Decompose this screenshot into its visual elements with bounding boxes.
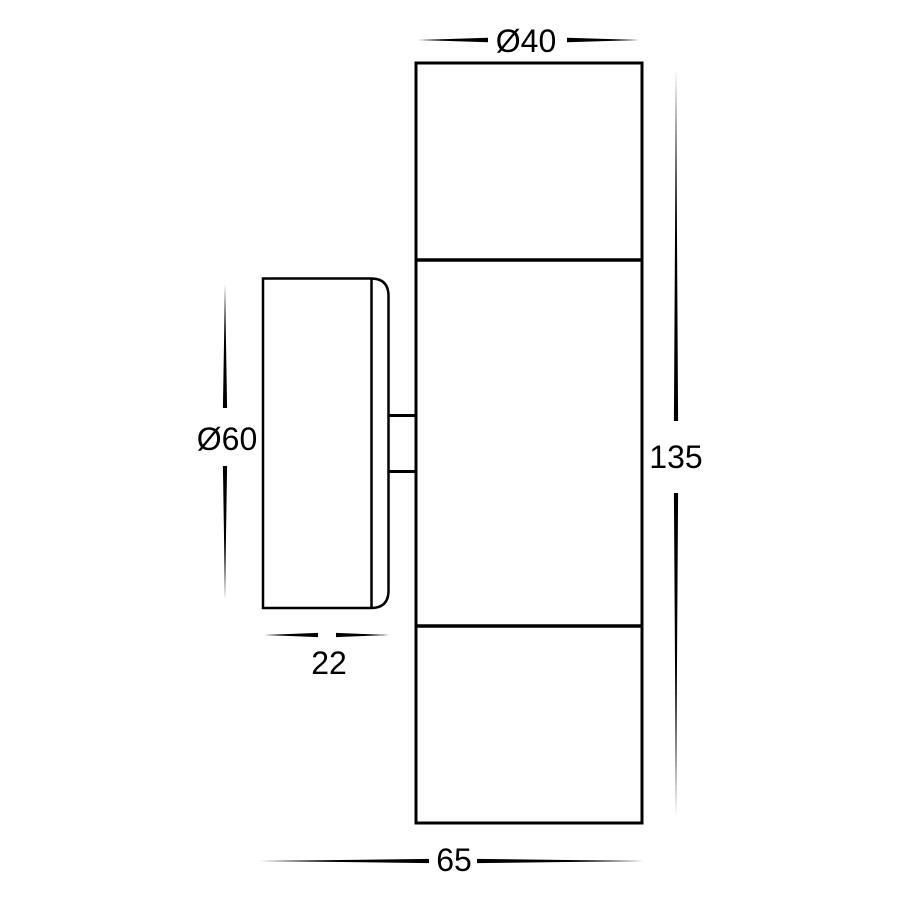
- dimension-body-height: 135: [649, 69, 702, 817]
- dimension-label-plate-diameter: Ø60: [197, 421, 257, 457]
- dimension-plate-diameter: Ø60: [197, 284, 257, 600]
- dimension-arrow-left-icon: [259, 859, 429, 863]
- dimension-label-body-height: 135: [649, 439, 702, 475]
- dimension-label-body-diameter: Ø40: [496, 23, 556, 59]
- dimension-arrow-right-icon: [336, 633, 389, 637]
- dimension-label-overall-depth: 65: [436, 842, 472, 878]
- dimension-arrow-down-icon: [223, 466, 227, 600]
- dimension-body-diameter: Ø40: [418, 23, 640, 59]
- dimension-arrow-up-icon: [223, 284, 227, 408]
- dimension-overall-depth: 65: [259, 842, 644, 878]
- dimension-arrow-right-icon: [477, 859, 644, 863]
- mount-plate: [263, 279, 416, 609]
- body-outline: [416, 63, 642, 823]
- dimension-arrow-left-icon: [264, 633, 318, 637]
- dimension-arrow-down-icon: [674, 493, 678, 817]
- dimension-drawing: Ø40 Ø60 135 22 65: [0, 0, 900, 900]
- drawing-svg: Ø40 Ø60 135 22 65: [0, 0, 900, 900]
- dimension-arrow-right-icon: [567, 38, 640, 42]
- mount-plate-outline: [263, 279, 389, 609]
- dimension-plate-depth: 22: [264, 633, 389, 681]
- dimension-label-plate-depth: 22: [311, 645, 347, 681]
- dimension-arrow-up-icon: [674, 69, 678, 421]
- dimension-arrow-left-icon: [418, 38, 488, 42]
- fixture-body: [416, 63, 642, 823]
